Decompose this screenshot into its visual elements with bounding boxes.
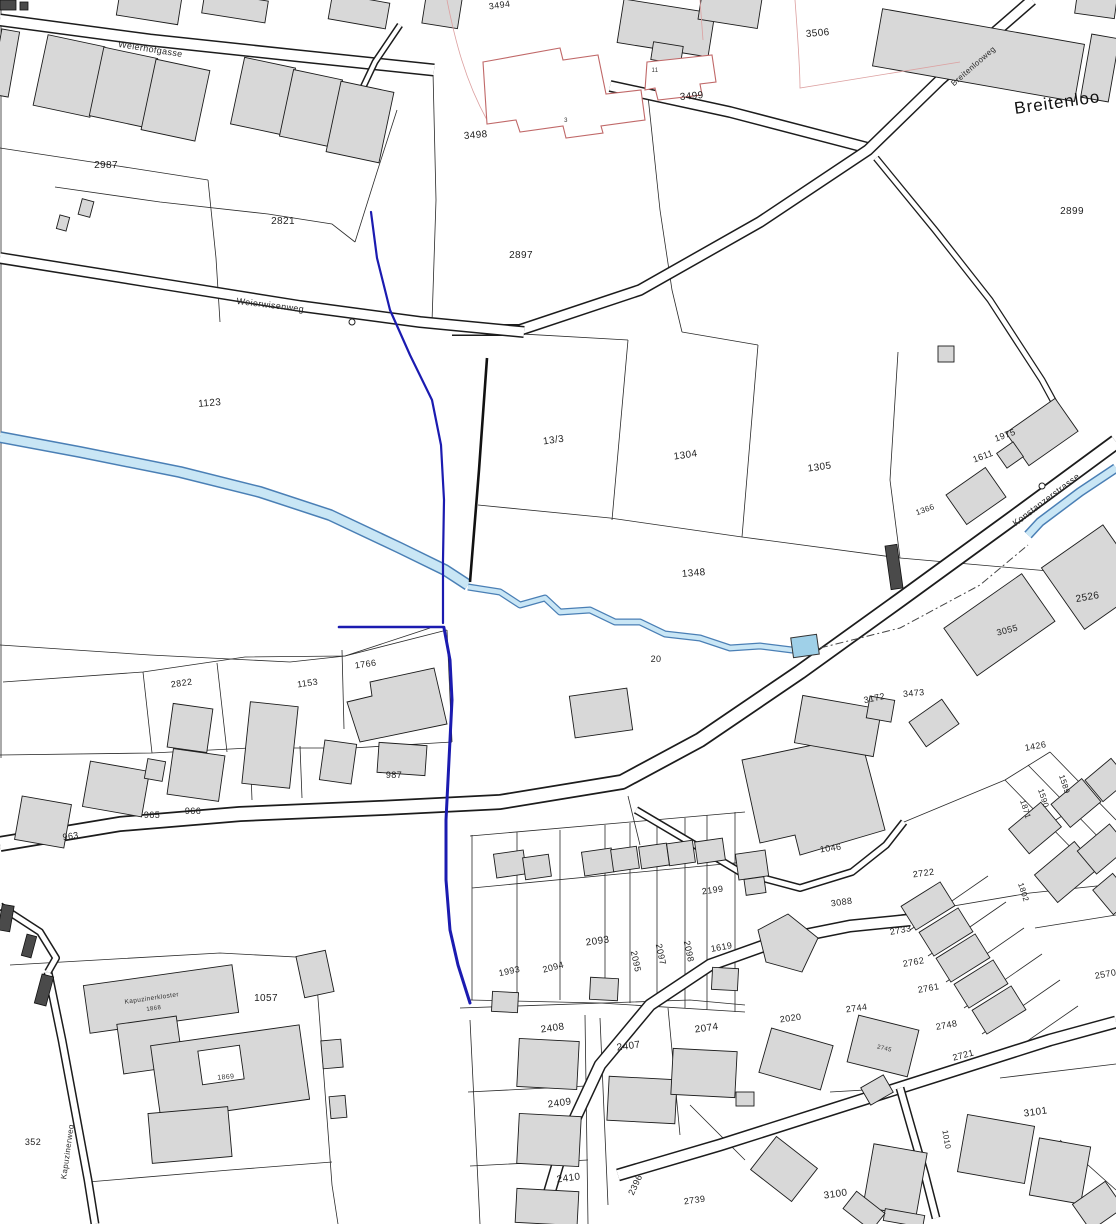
parcel-label: 2987: [94, 160, 118, 171]
stream-meander: [468, 587, 818, 650]
building: [319, 740, 356, 784]
parcel-label: 3473: [903, 687, 925, 699]
parcel-label: 1766: [354, 658, 377, 671]
water-basin: [791, 634, 820, 657]
parcel-label: 2409: [547, 1096, 572, 1110]
parcel-label: 1305: [807, 460, 832, 474]
building: [1029, 1138, 1090, 1204]
parcel-label: 2722: [912, 867, 935, 880]
building: [758, 914, 818, 972]
building: [944, 574, 1055, 676]
building: [144, 759, 165, 782]
parcel-label: 2748: [935, 1018, 958, 1032]
road-konstanzerstrasse: [0, 442, 1116, 844]
building: [1041, 525, 1116, 629]
wall-mark: [0, 0, 16, 10]
parcel-label: 1802: [1016, 882, 1031, 903]
survey-point: [349, 319, 355, 325]
parcel-label: 3506: [805, 27, 830, 40]
building: [517, 1113, 582, 1166]
building: [695, 838, 726, 864]
house-label: 1869: [217, 1073, 235, 1081]
parcel-label: 2098: [682, 940, 696, 963]
building: [607, 1076, 677, 1123]
parcel-label: 2410: [556, 1171, 581, 1185]
parcel-label: 1871: [1018, 799, 1033, 820]
house-label: 11: [651, 68, 658, 74]
parcel-label: 1366: [914, 502, 935, 517]
parcel-label: 963: [62, 830, 79, 842]
parcel-label: 1153: [297, 677, 319, 690]
parcel-label: 3494: [488, 0, 511, 11]
parcel-label: 3101: [1023, 1105, 1048, 1119]
building: [611, 846, 640, 871]
parcel-label: 2899: [1060, 206, 1084, 217]
parcel-label: 1304: [673, 448, 698, 462]
parcel-label: 2093: [585, 934, 610, 948]
parcel-label: 2199: [701, 884, 724, 897]
parcel-label: 1348: [681, 567, 706, 580]
parcel-label: 1426: [1024, 739, 1047, 753]
parcel-label: 2097: [654, 943, 668, 966]
parcel-label: 1010: [940, 1129, 952, 1150]
building: [82, 761, 149, 817]
shed: [56, 215, 69, 231]
building: [328, 0, 390, 29]
road-spur: [876, 158, 1068, 428]
building: [909, 699, 959, 747]
building: [202, 0, 269, 23]
building: [329, 1095, 347, 1118]
wall-mark: [20, 2, 28, 10]
parcel-label: 2744: [845, 1002, 868, 1015]
parcel-label: 2739: [683, 1194, 706, 1207]
building: [711, 967, 738, 990]
parcel-label: 2020: [779, 1012, 802, 1025]
building: [946, 467, 1006, 524]
building: [581, 848, 614, 876]
building: [667, 840, 696, 865]
route-line-lower: [444, 628, 470, 1003]
building: [493, 850, 526, 878]
shed: [78, 199, 94, 218]
parcel-label: 3088: [830, 896, 853, 909]
building: [735, 850, 768, 880]
building: [167, 703, 213, 752]
parcel-label: 13/3: [542, 434, 564, 448]
parcel-label: 2821: [271, 216, 295, 227]
parcel-label: 352: [25, 1137, 41, 1147]
building: [517, 1038, 579, 1089]
parcel-label: 2407: [616, 1039, 641, 1053]
building: [1093, 873, 1116, 914]
parcel-label: 2822: [170, 677, 193, 690]
building: [242, 702, 298, 789]
street-label: Kapuzinerweg: [59, 1124, 76, 1180]
parcel-label: 1046: [819, 842, 842, 855]
parcel-label: 1057: [254, 993, 278, 1004]
building: [0, 29, 20, 97]
road-top-right-fill: [610, 86, 868, 148]
parcel-label: 2897: [509, 250, 533, 261]
map-canvas: WeierhofgasseBreitenloowegBreitenlooWeie…: [0, 0, 1116, 1224]
parcel-label: 1993: [498, 964, 521, 978]
stream-main: [0, 437, 468, 585]
parcel-label: 965: [144, 810, 160, 820]
wall-mark: [0, 904, 14, 932]
stream-meander-casing: [468, 587, 818, 650]
building: [639, 843, 670, 869]
building: [759, 1028, 833, 1090]
building: [491, 991, 518, 1012]
parcel-label: 3498: [463, 129, 488, 142]
parcel-label: 2094: [541, 959, 564, 974]
building: [744, 877, 766, 896]
parcel-label: 2761: [917, 981, 940, 995]
building: [957, 1115, 1034, 1184]
bold-boundary: [470, 358, 487, 582]
building: [1009, 802, 1062, 854]
planned-building-large: [483, 48, 645, 138]
building: [167, 749, 225, 802]
parcel-label: 2762: [902, 955, 925, 969]
building: [671, 1048, 737, 1097]
building: [1075, 0, 1116, 19]
parcel-label: 1589: [1057, 774, 1072, 795]
parcel-label: 1611: [971, 448, 994, 465]
building: [321, 1039, 343, 1069]
parcel-label: 966: [185, 806, 201, 816]
building: [515, 1188, 579, 1224]
parcel-label: 1123: [198, 397, 222, 410]
stream-main-casing: [0, 437, 468, 585]
building: [116, 0, 181, 25]
parcel-label: 2074: [694, 1021, 719, 1035]
building: [523, 854, 552, 879]
road-konstanzerstrasse-fill: [0, 442, 1116, 844]
building: [569, 688, 632, 738]
building: [296, 950, 334, 997]
parcel-label: 2408: [540, 1021, 565, 1035]
parcel-label: 2570: [1094, 967, 1116, 981]
parcel-label: 3499: [679, 90, 704, 103]
building-kloster: [148, 1107, 232, 1164]
building: [422, 0, 462, 29]
parcel-label: 987: [386, 770, 402, 780]
parcel-label: 2095: [629, 950, 643, 973]
shed: [938, 346, 954, 362]
wall-mark: [21, 934, 36, 958]
parcel-label: 20: [651, 654, 662, 664]
building: [589, 977, 618, 1000]
building: [736, 1092, 754, 1106]
cadastral-map: WeierhofgasseBreitenloowegBreitenlooWeie…: [0, 0, 1116, 1224]
survey-point: [1039, 483, 1045, 489]
building: [347, 668, 447, 742]
parcel-label: 3100: [823, 1187, 848, 1201]
building: [751, 1136, 818, 1201]
tower: [885, 544, 903, 589]
house-label: 3: [564, 118, 568, 124]
